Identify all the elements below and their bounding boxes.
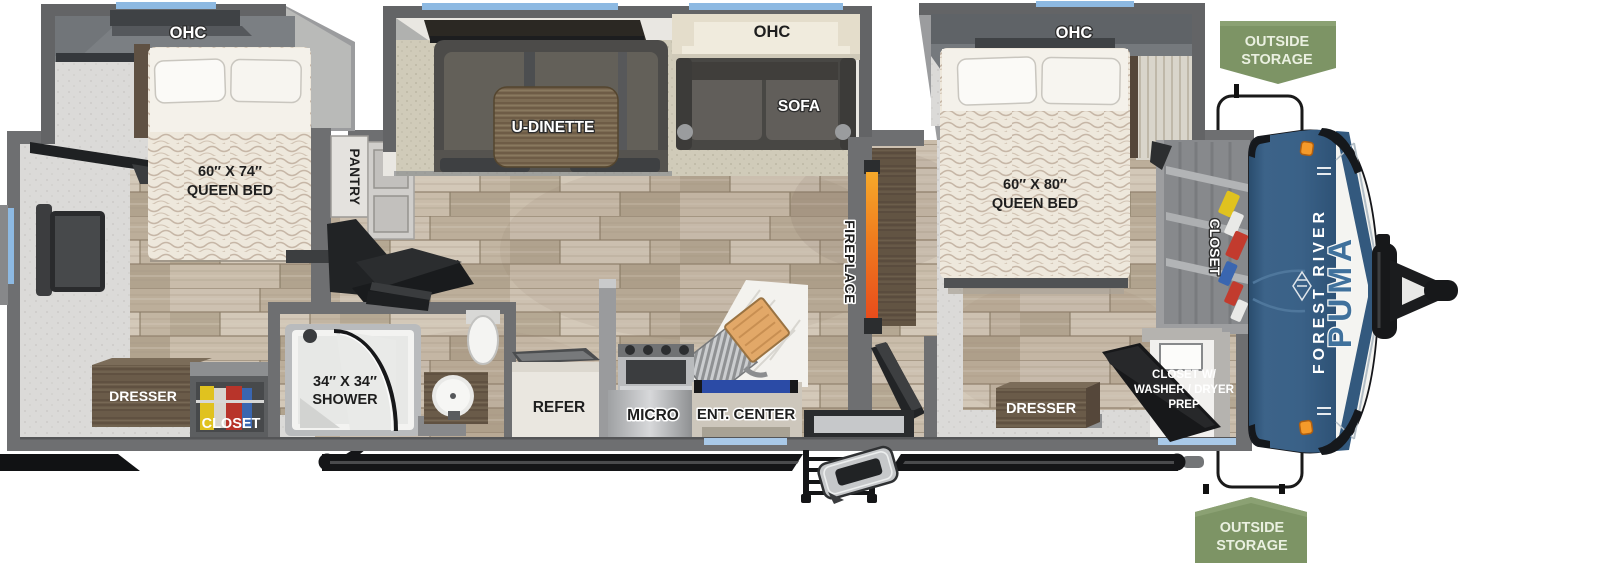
- svg-text:OUTSIDE: OUTSIDE: [1245, 34, 1310, 50]
- svg-text:60″ X 74″: 60″ X 74″: [198, 164, 262, 180]
- svg-text:OHC: OHC: [1056, 24, 1093, 42]
- svg-text:OHC: OHC: [170, 24, 207, 42]
- svg-text:CLOSET: CLOSET: [202, 416, 261, 432]
- svg-text:OUTSIDE: OUTSIDE: [1220, 520, 1285, 536]
- svg-text:ENT. CENTER: ENT. CENTER: [697, 406, 796, 423]
- svg-text:FIREPLACE: FIREPLACE: [842, 220, 858, 304]
- svg-text:PREP: PREP: [1168, 399, 1200, 411]
- svg-text:DRESSER: DRESSER: [109, 388, 177, 404]
- svg-text:CLOSET W/: CLOSET W/: [1152, 369, 1217, 381]
- svg-text:SHOWER: SHOWER: [312, 392, 378, 408]
- svg-text:MICRO: MICRO: [627, 407, 679, 424]
- svg-text:PUMA: PUMA: [1322, 234, 1358, 348]
- svg-text:DRESSER: DRESSER: [1006, 401, 1077, 417]
- svg-text:60″ X 80″: 60″ X 80″: [1003, 177, 1067, 193]
- svg-text:WASHER / DRYER: WASHER / DRYER: [1134, 384, 1235, 396]
- svg-text:OHC: OHC: [754, 23, 791, 41]
- svg-text:STORAGE: STORAGE: [1216, 538, 1288, 554]
- svg-text:STORAGE: STORAGE: [1241, 52, 1313, 68]
- svg-text:PANTRY: PANTRY: [347, 149, 362, 206]
- svg-text:CLOSET: CLOSET: [1207, 219, 1223, 276]
- svg-text:U-DINETTE: U-DINETTE: [512, 119, 595, 136]
- svg-text:REFER: REFER: [533, 399, 586, 416]
- svg-text:SOFA: SOFA: [778, 98, 820, 115]
- svg-text:QUEEN BED: QUEEN BED: [992, 196, 1078, 212]
- svg-text:34″ X 34″: 34″ X 34″: [313, 374, 377, 390]
- svg-text:QUEEN BED: QUEEN BED: [187, 183, 273, 199]
